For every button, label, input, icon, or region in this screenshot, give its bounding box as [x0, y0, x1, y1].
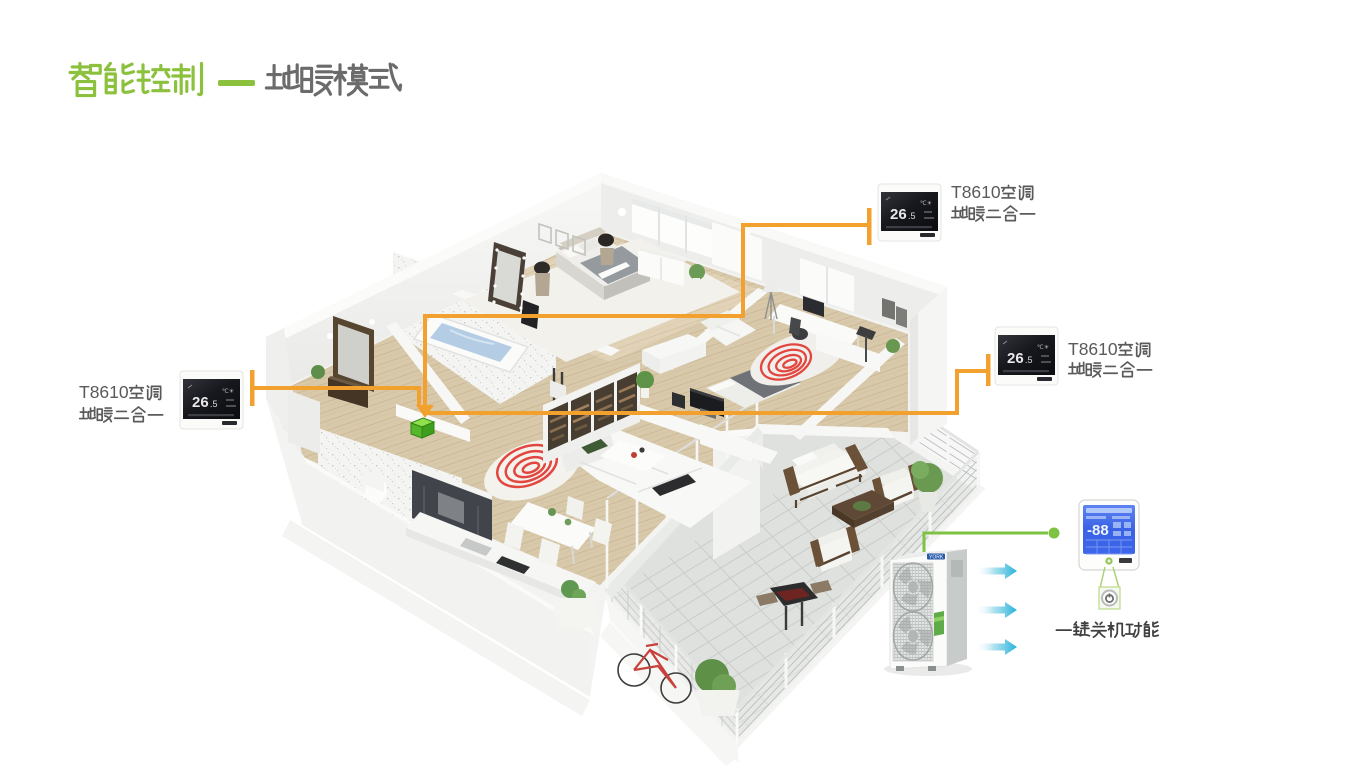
svg-text:T8610: T8610 [951, 182, 1001, 202]
svg-text:℃☀: ℃☀ [920, 200, 932, 207]
svg-text:℃☀: ℃☀ [222, 388, 234, 395]
svg-text:T8610: T8610 [79, 382, 129, 402]
svg-text:26: 26 [1007, 350, 1024, 367]
svg-text:-88: -88 [1087, 522, 1109, 539]
svg-text:YORK: YORK [929, 555, 944, 561]
svg-text:26: 26 [890, 206, 907, 223]
svg-text:.5: .5 [908, 211, 916, 221]
svg-text:.5: .5 [1025, 355, 1033, 365]
svg-text:26: 26 [192, 394, 209, 411]
svg-text:℃☀: ℃☀ [1037, 344, 1049, 351]
svg-text:T8610: T8610 [1068, 339, 1118, 359]
svg-text:.5: .5 [210, 399, 218, 409]
